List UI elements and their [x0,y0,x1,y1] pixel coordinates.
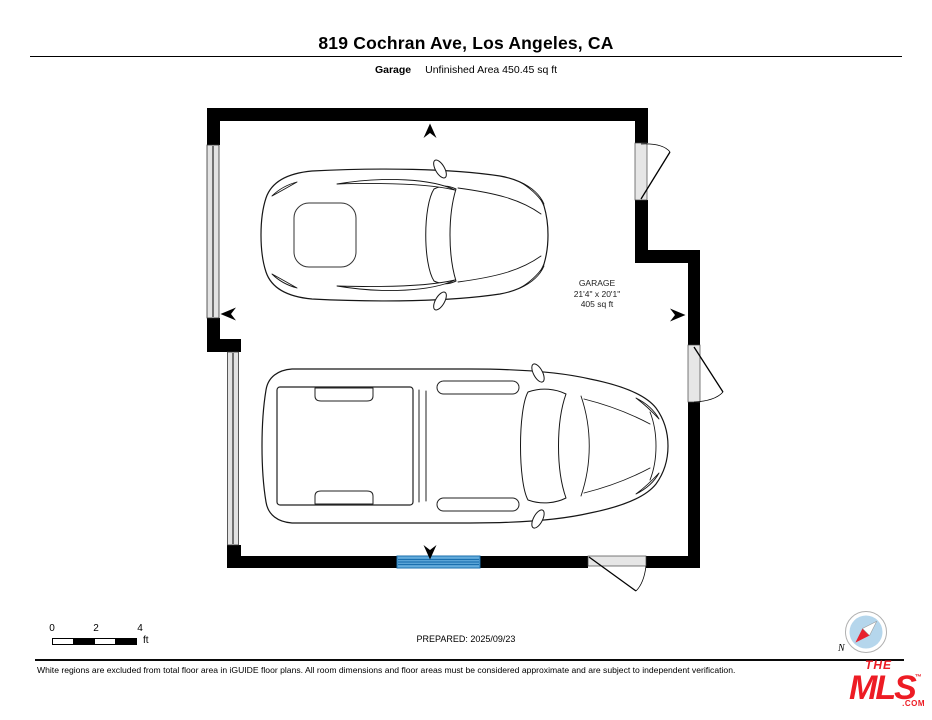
wall-segment [688,402,700,568]
door-swing-arc [636,566,646,591]
room-label: GARAGE 21'4" x 20'1" 405 sq ft [547,278,647,310]
door-right [688,345,723,402]
door-top-right [635,143,670,200]
footer-divider [35,659,904,661]
floorplan-canvas [0,0,932,720]
compass-north-label: N [838,643,845,654]
floorplan-page: 819 Cochran Ave, Los Angeles, CA GarageU… [0,0,932,720]
wall-segment [207,121,220,145]
window-blue-bottom [397,556,480,568]
door-opening [588,556,646,566]
wall-segment [688,263,700,345]
room-name: GARAGE [547,278,647,289]
room-area: 405 sq ft [547,299,647,310]
wall-segment [227,556,397,568]
floor-subtitle: GarageUnfinished Area 450.45 sq ft [0,64,932,76]
wall-segment [207,108,648,121]
wall-segment [635,121,648,143]
direction-arrow-right [670,309,686,322]
window-lower-left [228,352,239,545]
trademark-symbol: ™ [915,674,922,681]
scale-tick: 4 [134,623,146,634]
wall-segment [635,200,648,250]
direction-arrow-up [424,124,437,139]
car-coupe [261,158,548,312]
prepared-date: PREPARED: 2025/09/23 [0,634,932,644]
floor-area-note: Unfinished Area 450.45 sq ft [425,64,557,76]
disclaimer-text: White regions are excluded from total fl… [37,665,737,675]
door-bottom-right [588,556,646,591]
direction-arrow-left [221,308,237,321]
title-divider [30,56,902,57]
wall-segment [207,318,220,352]
page-title: 819 Cochran Ave, Los Angeles, CA [0,33,932,54]
scale-tick: 0 [46,623,58,634]
car-pickup-truck [262,362,668,530]
wall-segment [635,250,700,263]
window-upper-left [207,145,219,318]
floor-name: Garage [375,64,411,76]
room-dimensions: 21'4" x 20'1" [547,289,647,300]
mls-logo: THE MLS™ .COM [849,659,931,708]
wall-segment [220,339,241,352]
compass-icon [846,612,887,653]
scale-tick: 2 [90,623,102,634]
wall-segment [480,556,588,568]
